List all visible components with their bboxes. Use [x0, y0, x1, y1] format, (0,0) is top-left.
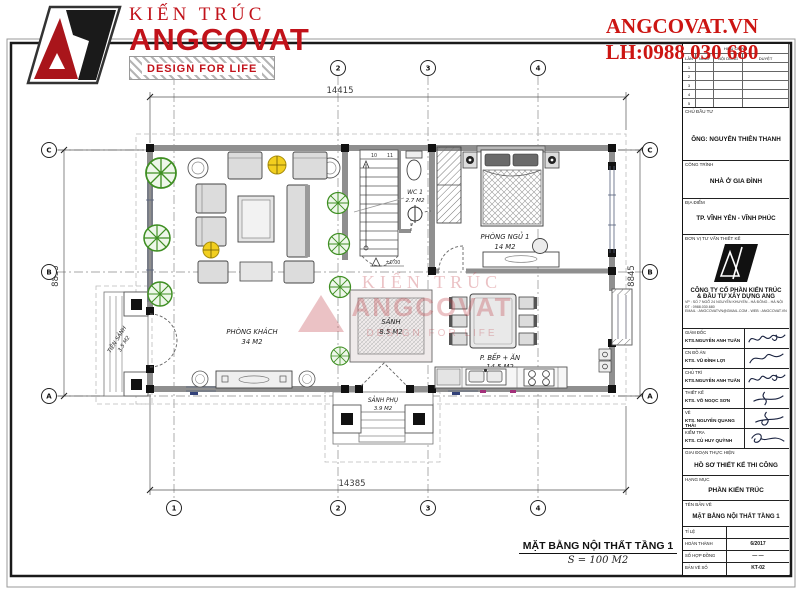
rev-row-3: 3	[683, 81, 696, 90]
watermark-line3: DESIGN FOR LIFE	[366, 328, 497, 339]
meta-value: 6/2017	[727, 539, 789, 550]
front-porch: TIỀN SẢNH 3.5 M2	[104, 292, 148, 396]
location-value: TP. VĨNH YÊN - VĨNH PHÚC	[683, 215, 789, 222]
room-area-living: 34 M2	[242, 338, 263, 346]
meta-label: BẢN VẼ SỐ	[683, 563, 727, 575]
meta-row-completed: HOÀN THÀNH 6/2017	[683, 539, 789, 551]
drawing-title-block: MẶT BẰNG NỘI THẤT TẦNG 1 S = 100 M2	[515, 536, 681, 566]
staircase: 10 11	[354, 150, 404, 256]
sig-name: KTS.NGUYỄN ANH TUẤN	[685, 378, 744, 383]
grid-row-b-left: B	[46, 269, 51, 277]
drawing-name-section: TÊN BẢN VẼ MẶT BẰNG NỘI THẤT TẦNG 1	[683, 501, 789, 527]
signature-row-kiem-tra: KIỂM TRA KTS. CÙ HUY QUỲNH	[683, 429, 789, 449]
room-label-kitchen: P. BẾP + ĂN	[480, 352, 520, 362]
category-value: PHẦN KIẾN TRÚC	[683, 487, 789, 494]
angcovat-logo-icon	[26, 5, 122, 85]
sig-role: THIẾT KẾ	[685, 390, 744, 395]
signature	[745, 349, 789, 368]
rev-row-4: 4	[683, 90, 696, 99]
rev-row-2: 2	[683, 72, 696, 81]
phone: LH:0988 030 680	[594, 39, 770, 65]
project-section: CÔNG TRÌNH NHÀ Ở GIA ĐÌNH	[683, 161, 789, 199]
contact-block: ANGCOVAT.VN LH:0988 030 680	[594, 13, 770, 66]
brand-tagline-band: DESIGN FOR LIFE	[129, 56, 275, 80]
grid-col-2-top: 2	[336, 65, 341, 73]
meta-value	[727, 527, 789, 538]
drawing-title: MẶT BẰNG NỘI THẤT TẦNG 1	[519, 540, 678, 554]
sig-role: CN ĐỒ ÁN	[685, 350, 744, 355]
grid-row-a-left: A	[46, 393, 52, 401]
sig-name: KTS.NGUYỄN ANH TUẤN	[685, 338, 744, 343]
project-label: CÔNG TRÌNH	[685, 162, 713, 167]
watermark-line2: ANGCOVAT	[352, 292, 513, 322]
grid-row-c-right: C	[647, 147, 652, 155]
category-section: HẠNG MỤC PHẦN KIẾN TRÚC	[683, 476, 789, 501]
drawing-scale: S = 100 M2	[515, 555, 681, 566]
meta-row-scale: TỈ LỆ	[683, 527, 789, 539]
dim-bottom: 14385	[338, 479, 365, 489]
signature	[745, 389, 789, 408]
signature-row-director: GIÁM ĐỐC KTS.NGUYỄN ANH TUẤN	[683, 329, 789, 349]
sig-name: KTS. CÙ HUY QUỲNH	[685, 438, 744, 443]
website: ANGCOVAT.VN	[594, 13, 770, 39]
sig-name: KTS. NGUYỄN QUANG THÁI	[685, 418, 744, 428]
floor-plan-canvas: 14415 14385 8835 8845 TIỀN SẢNH 3.5 M2	[0, 0, 800, 600]
consultant-addr3: EMAIL : ANGCOVATVN@GMAIL.COM - WEB : ANG…	[683, 309, 789, 314]
brand-tagline: DESIGN FOR LIFE	[142, 63, 262, 75]
owner-label: CHỦ ĐẦU TƯ	[685, 109, 713, 114]
sig-role: CHỦ TRÌ	[685, 370, 744, 375]
signature-row-chu-tri: CHỦ TRÌ KTS.NGUYỄN ANH TUẤN	[683, 369, 789, 389]
room-label-bedroom: PHÒNG NGỦ 1	[481, 231, 530, 241]
meta-value: — —	[727, 551, 789, 562]
grid-col-3-bottom: 3	[426, 505, 431, 513]
stage-value: HỒ SƠ THIẾT KẾ THI CÔNG	[683, 462, 789, 469]
sig-name: KTS. VŨ ĐÌNH LỢI	[685, 358, 744, 363]
meta-label: HOÀN THÀNH	[683, 539, 727, 550]
brand-name: ANGCOVAT	[129, 25, 310, 54]
consultant-section: ĐƠN VỊ TƯ VẤN THIẾT KẾ CÔNG TY CỔ PHẦN K…	[683, 235, 789, 329]
grid-col-4-bottom: 4	[536, 505, 541, 513]
location-label: ĐỊA ĐIỂM	[685, 200, 705, 205]
owner-section: CHỦ ĐẦU TƯ ÔNG: NGUYỄN THIÊN THANH	[683, 108, 789, 161]
room-area-wc: 2.7 M2	[405, 198, 425, 204]
grid-row-b-right: B	[647, 269, 652, 277]
watermark-line1: KIẾN TRÚC	[362, 271, 502, 292]
stage-label: GIAI ĐOẠN THỰC HIỆN	[685, 450, 735, 455]
brand-logo-block: KIẾN TRÚC ANGCOVAT DESIGN FOR LIFE	[26, 5, 310, 85]
drawing-sheet: 14415 14385 8835 8845 TIỀN SẢNH 3.5 M2	[0, 0, 800, 600]
signature	[745, 369, 789, 388]
consultant-addr1: VP : SỐ 7 NGÕ 24 NGUYỄN KHUYẾN - HÀ ĐÔNG…	[683, 300, 789, 305]
bedroom: PHÒNG NGỦ 1 14 M2	[437, 146, 559, 267]
sig-name: KTS. VÕ NGỌC SƠN	[685, 398, 744, 403]
drawing-name-label: TÊN BẢN VẼ	[685, 502, 712, 507]
consultant-label: ĐƠN VỊ TƯ VẤN THIẾT KẾ	[685, 236, 740, 241]
signature-row-cn-do-an: CN ĐỒ ÁN KTS. VŨ ĐÌNH LỢI	[683, 349, 789, 369]
meta-row-contract: SỐ HỢP ĐỒNG — —	[683, 551, 789, 563]
consultant-logo-icon	[713, 243, 759, 283]
wc-room: WC 1 2.7 M2	[405, 151, 425, 223]
grid-col-3-top: 3	[426, 65, 431, 73]
room-area-sanh-phu: 3.9 M2	[374, 406, 393, 412]
signature	[745, 429, 789, 448]
meta-label: SỐ HỢP ĐỒNG	[683, 551, 727, 562]
grid-col-2-bottom: 2	[336, 505, 341, 513]
watermark: KIẾN TRÚC ANGCOVAT DESIGN FOR LIFE	[298, 271, 512, 339]
category-label: HẠNG MỤC	[685, 477, 710, 482]
room-label-sanh-phu: SẢNH PHỤ	[368, 396, 399, 404]
signature	[745, 329, 789, 348]
sig-role: VẼ	[685, 410, 744, 415]
project-value: NHÀ Ở GIA ĐÌNH	[683, 178, 789, 185]
grid-col-1-bottom: 1	[172, 505, 177, 513]
rev-row-5: 5	[683, 99, 696, 108]
bay-window	[612, 289, 632, 345]
grid-row-a-right: A	[647, 393, 653, 401]
signature-row-ve: VẼ KTS. NGUYỄN QUANG THÁI	[683, 409, 789, 429]
dim-right: 8845	[627, 265, 637, 287]
room-label-wc: WC 1	[407, 189, 423, 196]
room-label-living: PHÒNG KHÁCH	[226, 327, 277, 336]
sig-role: GIÁM ĐỐC	[685, 330, 744, 335]
stage-section: GIAI ĐOẠN THỰC HIỆN HỒ SƠ THIẾT KẾ THI C…	[683, 449, 789, 476]
sig-role: KIỂM TRA	[685, 430, 744, 435]
grid-row-c-left: C	[46, 147, 51, 155]
title-block: HIỆU CHỈNH LẦN NGÀY NỘI DUNG DUYỆT 1 2 3…	[682, 44, 789, 575]
dim-top: 14415	[326, 86, 353, 96]
signature	[745, 409, 789, 428]
meta-row-sheet-no: BẢN VẼ SỐ KT-02	[683, 563, 789, 575]
meta-label: TỈ LỆ	[683, 527, 727, 538]
meta-value: KT-02	[727, 563, 789, 575]
stair-number-10: 10	[371, 153, 377, 159]
room-area-bedroom: 14 M2	[495, 243, 516, 251]
owner-value: ÔNG: NGUYỄN THIÊN THANH	[683, 136, 789, 143]
stair-number-11: 11	[387, 153, 393, 159]
location-section: ĐỊA ĐIỂM TP. VĨNH YÊN - VĨNH PHÚC	[683, 199, 789, 235]
signature-row-thiet-ke: THIẾT KẾ KTS. VÕ NGỌC SƠN	[683, 389, 789, 409]
living-room: PHÒNG KHÁCH 34 M2	[188, 152, 340, 388]
rear-porch: SẢNH PHỤ 3.9 M2	[333, 392, 433, 444]
level-marker: ±0.00	[386, 260, 401, 266]
drawing-name-value: MẶT BẰNG NỘI THẤT TẦNG 1	[683, 513, 789, 520]
grid-col-4-top: 4	[536, 65, 541, 73]
